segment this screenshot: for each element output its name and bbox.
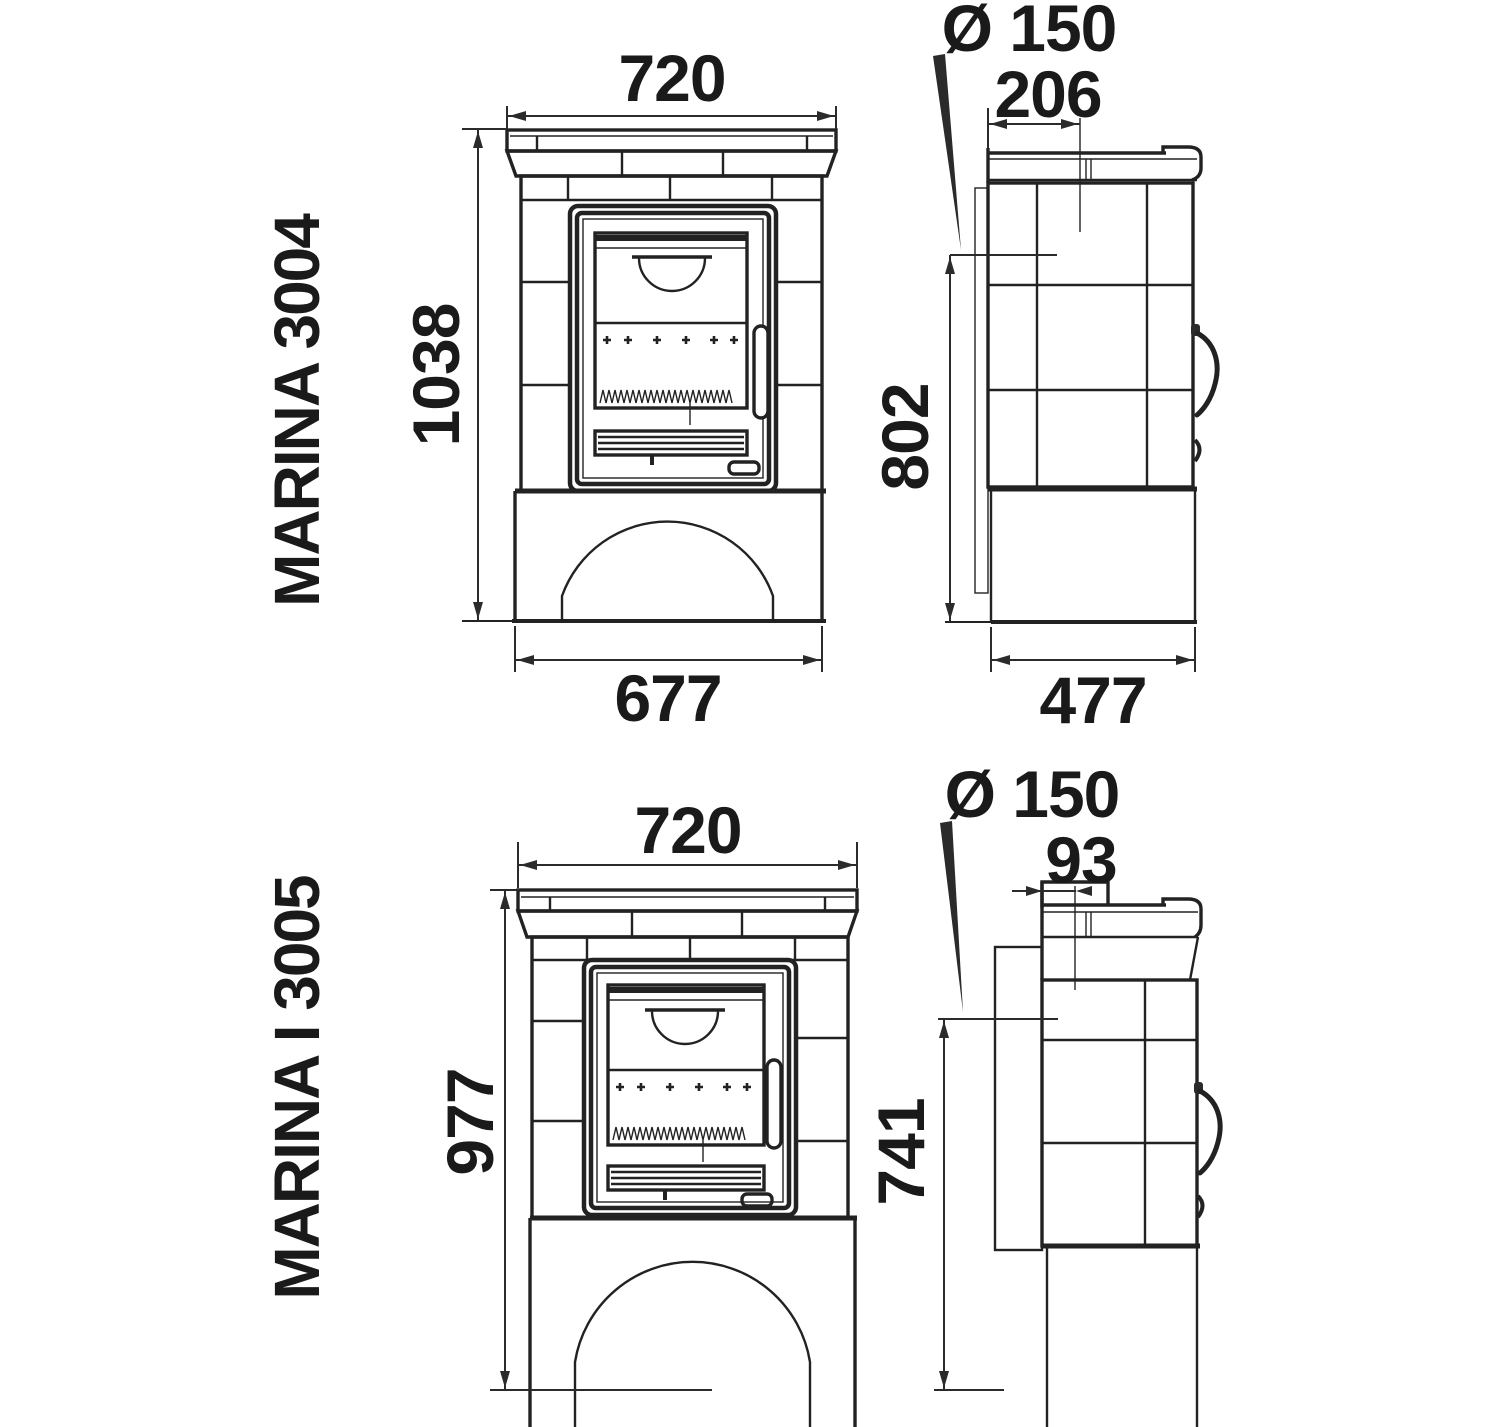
top-slab — [518, 890, 857, 911]
technical-drawing-page: MARINA 3004 MARINA I 3005 — [0, 0, 1500, 1427]
plinth-arch — [562, 522, 773, 621]
dim-720-top: 720 — [507, 41, 836, 129]
door-handle-bar — [767, 1060, 781, 1148]
tile-joints — [532, 1021, 848, 1141]
dim-label-width-top-3005: 720 — [634, 793, 741, 867]
door-glass — [595, 233, 747, 425]
dim-741: 741 — [864, 1019, 1058, 1390]
door-handle-bar — [754, 326, 768, 418]
dim-802: 802 — [868, 255, 1057, 622]
side-door-handle — [1191, 324, 1217, 461]
side-body — [1042, 980, 1197, 1246]
side-plinth — [1042, 1246, 1200, 1427]
air-holes — [616, 1083, 751, 1091]
side-view-3004 — [945, 118, 1217, 622]
dim-label-flue-diameter-3005: Ø 150 — [945, 757, 1120, 831]
plinth — [462, 491, 826, 621]
dim-label-width-top-3004: 720 — [618, 41, 725, 115]
front-view-3005 — [518, 890, 857, 1427]
dim-label-rear-height-3005: 741 — [864, 1098, 938, 1205]
plinth — [530, 1218, 857, 1427]
door-latch — [729, 462, 759, 474]
front-view-3004 — [462, 130, 836, 621]
model-label-marina-3004: MARINA 3004 — [261, 213, 333, 607]
dim-720-bottom: 720 — [518, 793, 857, 888]
ash-grille — [608, 1166, 764, 1200]
dim-477: 477 — [991, 627, 1195, 737]
stove-dimension-drawing: MARINA 3004 MARINA I 3005 — [0, 0, 1500, 1427]
dim-677: 677 — [515, 626, 822, 735]
model-label-marina-3005: MARINA I 3005 — [261, 876, 333, 1300]
door-latch — [742, 1194, 772, 1206]
top-slab — [507, 130, 836, 151]
dim-label-height-3005: 977 — [433, 1068, 507, 1175]
dim-206: 206 — [988, 57, 1102, 150]
air-holes — [603, 336, 738, 344]
damper-semicircle — [652, 1011, 718, 1044]
stove-door — [570, 206, 776, 491]
cornice — [518, 911, 857, 937]
dim-label-depth-3004: 477 — [1039, 663, 1146, 737]
side-view-3005 — [995, 882, 1220, 1427]
side-top-slab — [988, 147, 1201, 183]
dim-label-height-3004: 1038 — [399, 304, 473, 447]
rear-heat-shield — [975, 188, 988, 593]
cornice — [507, 151, 836, 176]
side-plinth — [945, 489, 1197, 622]
dim-1038: 1038 — [399, 129, 506, 621]
dim-label-flue-diameter-3004: Ø 150 — [942, 0, 1117, 65]
flame-zigzag — [613, 1127, 745, 1140]
dim-93: 93 — [1012, 823, 1117, 897]
flame-zigzag — [600, 390, 732, 403]
plinth-arch — [575, 1262, 810, 1427]
dim-label-flue-offset-3005: 93 — [1045, 823, 1116, 897]
rear-heat-shield — [995, 947, 1042, 1250]
side-body — [988, 183, 1193, 487]
flue-leader-wedge-3004 — [933, 54, 961, 250]
stove-door — [584, 960, 796, 1215]
dim-label-flue-offset-3004: 206 — [994, 57, 1101, 131]
dim-label-base-width-3004: 677 — [614, 661, 721, 735]
flue-leader-wedge-3005 — [940, 821, 963, 1012]
dim-label-rear-height-3004: 802 — [868, 383, 942, 490]
body-outline — [532, 937, 848, 1218]
ash-grille — [595, 431, 747, 465]
damper-semicircle — [639, 258, 705, 291]
door-glass — [608, 985, 764, 1162]
